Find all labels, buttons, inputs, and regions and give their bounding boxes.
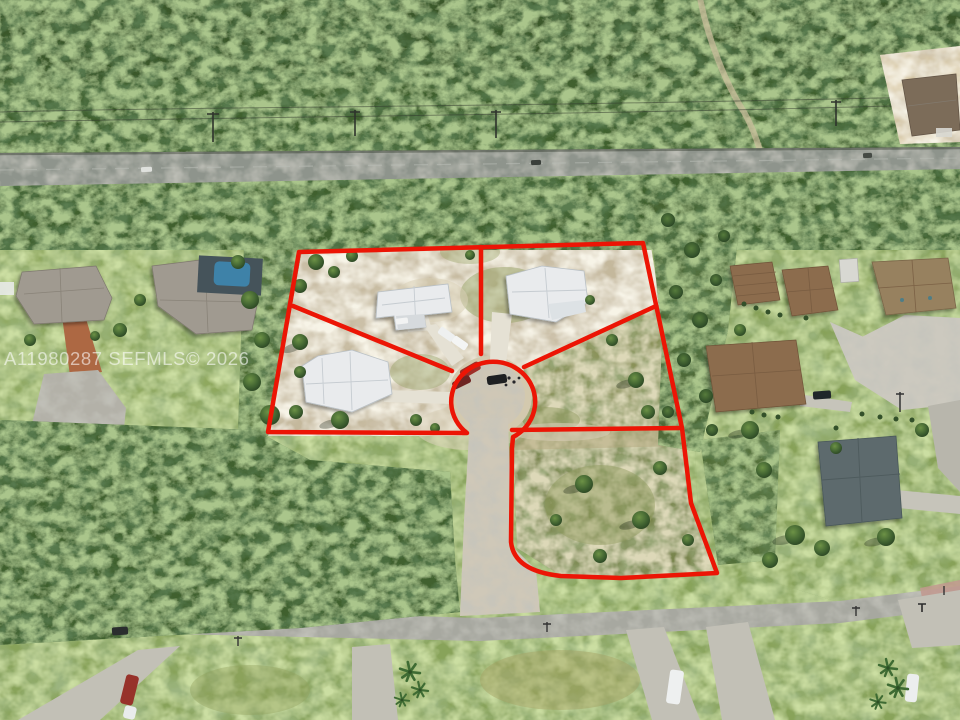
driveway-house-left	[382, 390, 452, 404]
house-right	[506, 266, 588, 322]
right-house-d-roof	[706, 340, 806, 412]
aerial-photo: A11980287 SEFMLS© 2026	[0, 0, 960, 720]
white-fence	[0, 282, 14, 295]
left-house-1-roof	[16, 266, 112, 324]
bottom-driveway-2	[352, 644, 398, 720]
dark-suv	[813, 390, 832, 399]
mls-watermark: A11980287 SEFMLS© 2026	[4, 348, 250, 369]
white-shed	[839, 258, 859, 282]
top-right-house-roof	[902, 74, 960, 136]
right-house-a-roof	[730, 262, 780, 305]
aerial-photo-canvas: A11980287 SEFMLS© 2026	[0, 0, 960, 720]
dark-car-on-road	[112, 626, 129, 635]
